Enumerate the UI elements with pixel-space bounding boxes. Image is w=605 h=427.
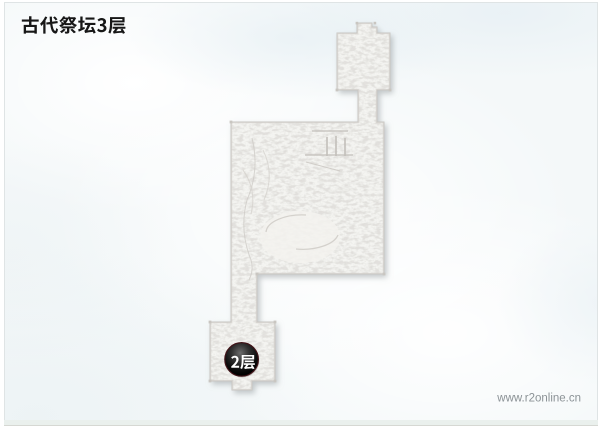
svg-text:www.r2online.cn: www.r2online.cn [496, 393, 581, 405]
